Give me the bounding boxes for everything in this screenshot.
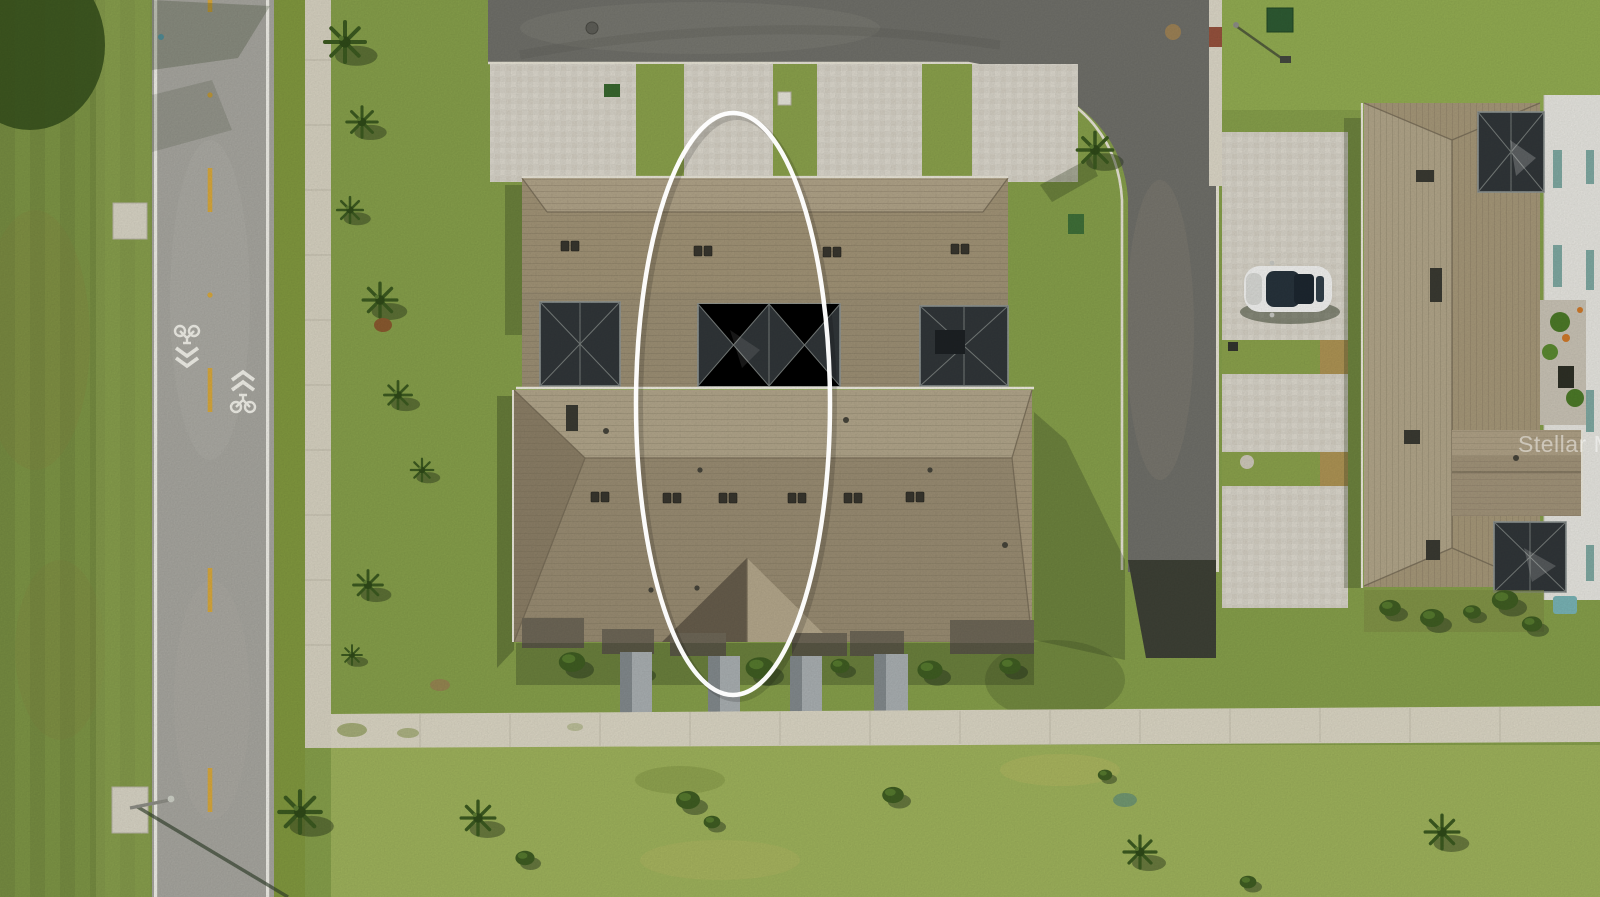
aerial-photo-real-estate: Stellar MLS [0,0,1600,897]
watermark-text: Stellar MLS [1518,431,1600,457]
aerial-scene: Stellar MLS [0,0,1600,897]
photo-grain [0,0,1600,897]
